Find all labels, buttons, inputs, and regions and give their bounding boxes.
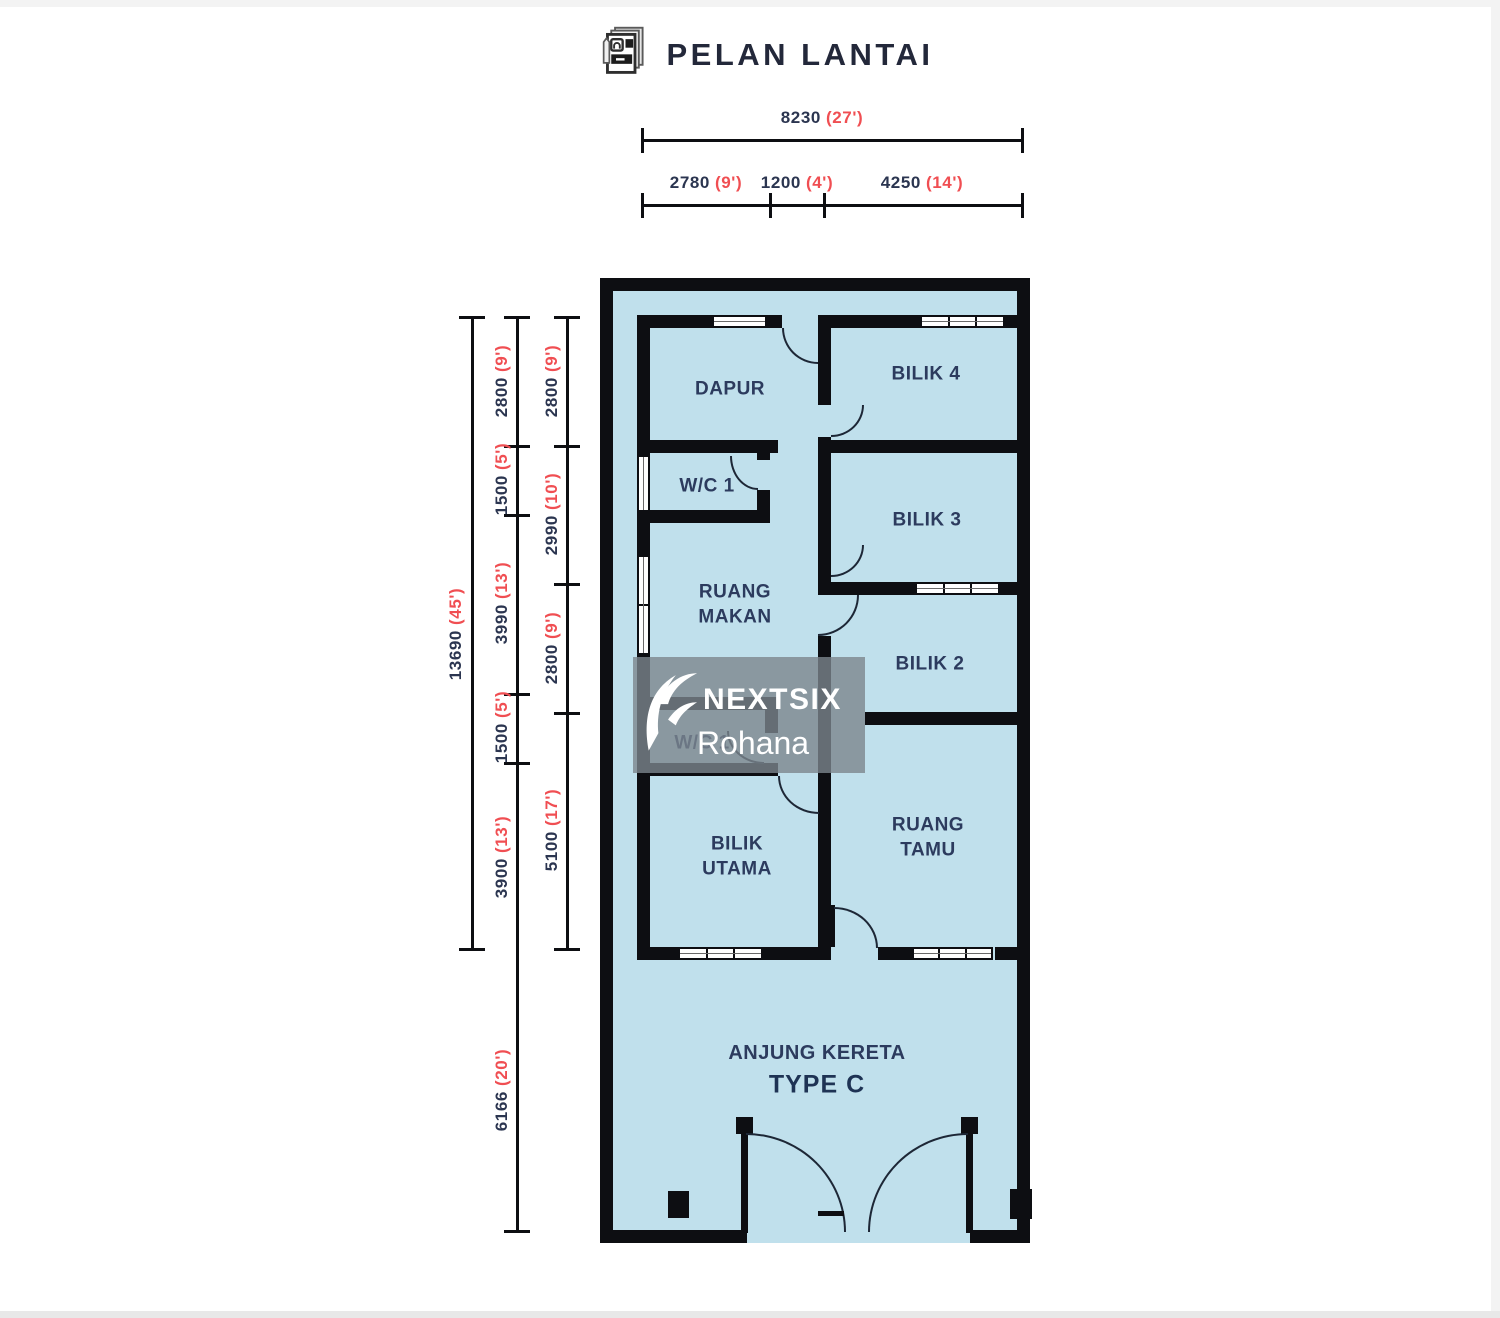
dim-label-top-total: 8230(27') <box>781 108 864 128</box>
dim-ft: (10') <box>542 473 561 510</box>
dim-mm: 2800 <box>542 377 561 417</box>
dim-mm: 2990 <box>542 515 561 555</box>
room-label-line: RUANG <box>892 814 964 835</box>
dim-mm: 2800 <box>492 377 511 417</box>
floor-plan-icon <box>597 23 654 80</box>
window-bilik2 <box>915 582 1000 595</box>
dim-mm: 1200 <box>761 173 801 192</box>
right-wall-pillar <box>1010 1189 1032 1219</box>
dim-mm: 8230 <box>781 108 821 127</box>
dim-tick <box>641 193 644 218</box>
window-ruang-makan <box>637 555 650 655</box>
dim-mm: 3990 <box>492 604 511 644</box>
dim-tick <box>459 948 485 951</box>
dim-label-mid-6: 6166(20') <box>492 1049 512 1132</box>
dim-mm: 6166 <box>492 1091 511 1131</box>
page-edge-top <box>0 0 1500 7</box>
room-label-ruang-makan: RUANG MAKAN <box>698 580 771 629</box>
dim-tick <box>504 1230 530 1233</box>
page-title: PELAN LANTAI <box>666 37 933 73</box>
watermark-name: Rohana <box>697 725 809 762</box>
dim-label-inner-3: 2800(9') <box>542 612 562 684</box>
gate-center-stop <box>818 1211 844 1216</box>
dim-label-seg3: 4250(14') <box>881 173 964 193</box>
dim-ft: (20') <box>492 1049 511 1086</box>
dim-line-top-segments <box>643 204 1023 207</box>
dim-ft: (45') <box>446 588 465 625</box>
floor-plan-page: PELAN LANTAI 8230(27') 2780(9') 1200(4')… <box>0 0 1500 1318</box>
wall-center-1 <box>818 315 831 405</box>
dim-ft: (13') <box>492 562 511 599</box>
dim-line-left-total <box>471 318 474 951</box>
dim-ft: (5') <box>492 691 511 718</box>
window-wc1 <box>637 455 650 512</box>
room-label-bilik4: BILIK 4 <box>892 363 961 388</box>
dim-tick <box>554 948 580 951</box>
dim-ft: (4') <box>806 173 833 192</box>
page-edge-right <box>1491 0 1500 1318</box>
dim-tick <box>504 316 530 319</box>
wall-center-2 <box>818 437 831 595</box>
window-bilik-utama <box>678 947 763 960</box>
exterior-wall-right <box>1017 278 1030 1243</box>
dim-line-left-inner <box>566 318 569 951</box>
exterior-wall-top <box>600 278 1030 291</box>
wall-bilik4-bilik3 <box>831 440 1017 453</box>
dim-label-inner-4: 5100(17') <box>542 789 562 872</box>
dim-mm: 3900 <box>492 858 511 898</box>
dim-mm: 1500 <box>492 475 511 515</box>
type-label: TYPE C <box>769 1071 865 1100</box>
room-label-dapur: DAPUR <box>695 378 765 403</box>
dim-label-mid-4: 1500(5') <box>492 691 512 763</box>
dim-label-left-total: 13690(45') <box>446 588 466 681</box>
dim-label-inner-2: 2990(10') <box>542 473 562 556</box>
dim-tick <box>1021 193 1024 218</box>
dim-mm: 2780 <box>670 173 710 192</box>
porch-pillar <box>668 1191 689 1218</box>
dim-tick <box>554 316 580 319</box>
dim-tick <box>554 583 580 586</box>
wall-wc1-right-upper <box>757 440 770 460</box>
dim-ft: (5') <box>492 443 511 470</box>
watermark: NEXTSIX Rohana <box>633 657 865 773</box>
dim-tick <box>823 193 826 218</box>
dim-label-seg1: 2780(9') <box>670 173 742 193</box>
dim-line-top-total <box>643 139 1023 142</box>
dim-ft: (13') <box>492 816 511 853</box>
dim-ft: (27') <box>826 108 863 127</box>
room-label-line: BILIK <box>711 833 763 854</box>
gate-post-right <box>961 1117 978 1134</box>
dim-mm: 2800 <box>542 644 561 684</box>
window-bilik4 <box>920 315 1005 328</box>
room-label-bilik3: BILIK 3 <box>893 509 962 534</box>
room-label-ruang-tamu: RUANG TAMU <box>892 813 964 862</box>
dim-ft: (14') <box>926 173 963 192</box>
watermark-brand: NEXTSIX <box>703 683 842 717</box>
page-edge-bottom <box>0 1311 1500 1318</box>
nextsix-logo-icon <box>641 665 699 753</box>
dim-tick <box>554 712 580 715</box>
window-dapur <box>712 315 767 328</box>
dim-ft: (9') <box>715 173 742 192</box>
dim-ft: (9') <box>542 612 561 639</box>
room-label-line: UTAMA <box>702 858 772 879</box>
wall-wc1-bottom <box>637 510 770 523</box>
wall-bilik2-ruangtamu <box>865 712 1017 725</box>
dim-label-mid-3: 3990(13') <box>492 562 512 645</box>
dim-ft: (17') <box>542 789 561 826</box>
dim-ft: (9') <box>542 345 561 372</box>
dim-ft: (9') <box>492 345 511 372</box>
dim-tick <box>1021 128 1024 153</box>
room-label-bilik2: BILIK 2 <box>896 653 965 678</box>
dim-tick <box>459 316 485 319</box>
window-ruang-tamu <box>912 947 993 960</box>
exterior-wall-bottom-right <box>970 1230 1030 1243</box>
dim-tick <box>641 128 644 153</box>
dim-mm: 1500 <box>492 723 511 763</box>
exterior-wall-left <box>600 278 613 1243</box>
room-label-line: RUANG <box>699 581 771 602</box>
dim-mm: 4250 <box>881 173 921 192</box>
wall-block-bottom-4 <box>995 947 1017 960</box>
dim-label-mid-5: 3900(13') <box>492 816 512 899</box>
dim-tick <box>769 193 772 218</box>
room-label-anjung-kereta: ANJUNG KERETA <box>728 1040 905 1066</box>
dim-label-mid-2: 1500(5') <box>492 443 512 515</box>
room-label-wc1: W/C 1 <box>679 475 734 500</box>
dim-label-mid-1: 2800(9') <box>492 345 512 417</box>
dim-mm: 5100 <box>542 831 561 871</box>
dim-label-inner-1: 2800(9') <box>542 345 562 417</box>
exterior-wall-bottom-left <box>600 1230 747 1243</box>
gate-post-left <box>736 1117 753 1134</box>
dim-label-seg2: 1200(4') <box>761 173 833 193</box>
room-label-line: MAKAN <box>698 606 771 627</box>
room-label-line: TAMU <box>900 839 955 860</box>
wall-wc1-right-lower <box>757 490 770 523</box>
dim-mm: 13690 <box>446 630 465 680</box>
dim-line-left-mid <box>516 318 519 1233</box>
dim-tick <box>554 445 580 448</box>
room-label-bilik-utama: BILIK UTAMA <box>702 832 772 881</box>
